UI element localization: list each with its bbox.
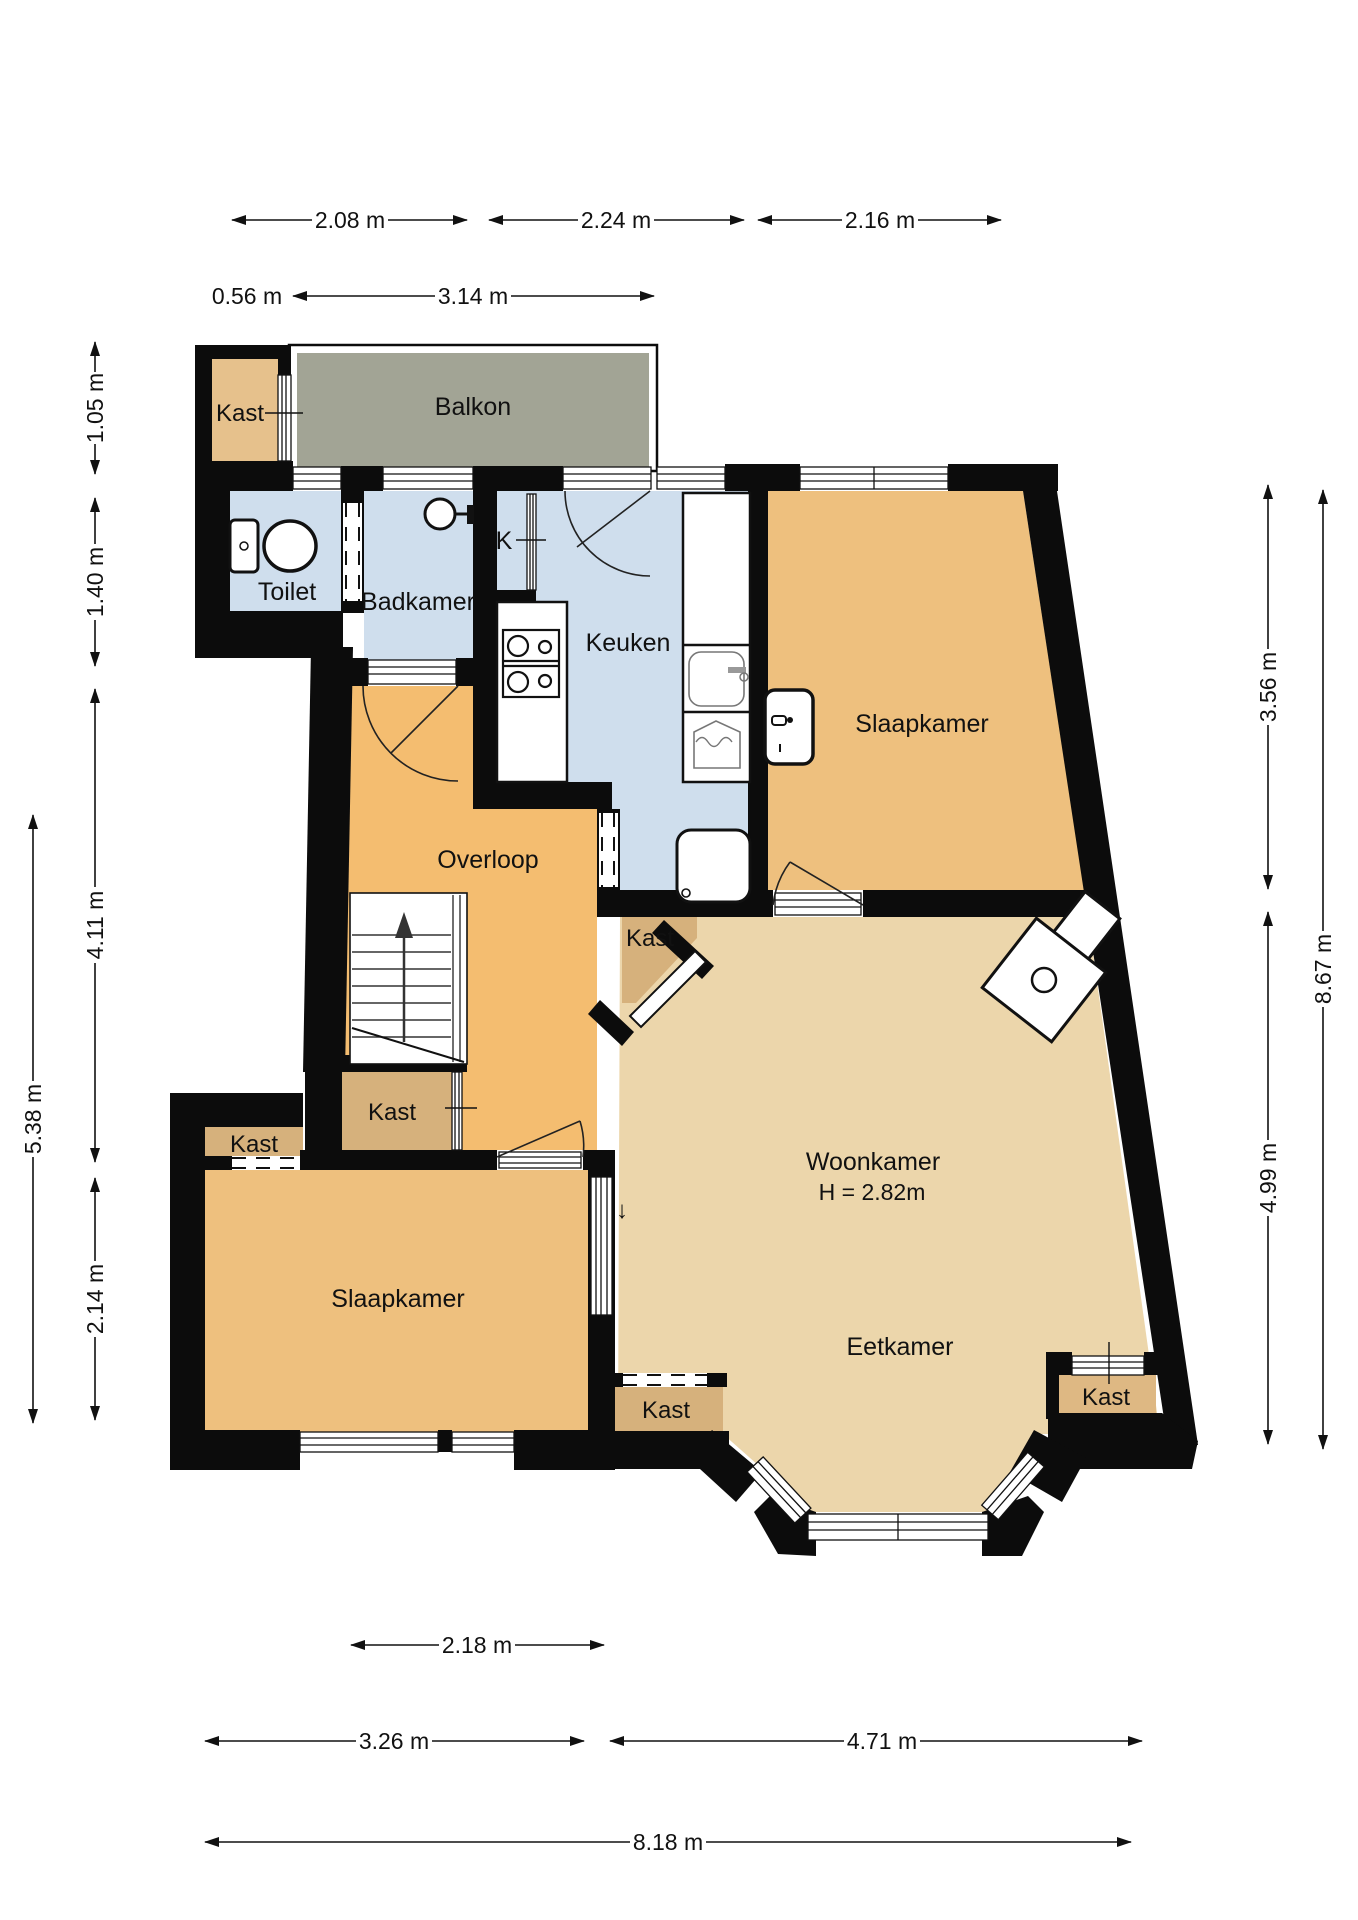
wall-segment — [438, 1430, 452, 1452]
opening-kast-eetkamer — [623, 1373, 707, 1387]
kitchen-sink-icon — [689, 652, 744, 706]
dimension-3-14: 3.14 m — [293, 283, 654, 309]
dim-label: 5.38 m — [20, 1084, 46, 1154]
wall-segment — [473, 602, 497, 784]
opening-overloop-woonkamer — [599, 813, 618, 887]
label-balkon: Balkon — [435, 393, 511, 421]
dimension-4-71: 4.71 m — [610, 1728, 1142, 1754]
door-threshold — [499, 1152, 581, 1168]
wall-segment — [707, 1373, 727, 1387]
dim-label: 1.40 m — [82, 547, 108, 617]
dimension-2-24: 2.24 m — [489, 207, 744, 233]
label-kast-k: K — [496, 527, 513, 555]
dim-label: 4.71 m — [847, 1728, 917, 1754]
dim-label: 8.67 m — [1310, 934, 1336, 1004]
window — [1072, 1356, 1144, 1375]
dim-label: 4.11 m — [82, 891, 108, 960]
dim-label: 3.26 m — [359, 1728, 429, 1754]
window — [452, 1072, 462, 1150]
floorplan-page: ↓ Kast Balkon Toilet Badkamer K Keuken S… — [0, 0, 1358, 1920]
dimension-4-99: 4.99 m — [1255, 912, 1281, 1444]
label-slaapkamer-links: Slaapkamer — [331, 1285, 464, 1313]
wall-segment — [473, 782, 612, 809]
toilet-icon — [230, 520, 316, 572]
wall-segment — [305, 1072, 342, 1152]
dimension-3-56: 3.56 m — [1255, 485, 1281, 889]
dim-label: 2.18 m — [442, 1632, 512, 1658]
dimension-3-26: 3.26 m — [205, 1728, 584, 1754]
dim-label: 8.18 m — [633, 1829, 703, 1855]
label-toilet: Toilet — [258, 578, 316, 606]
wall-segment — [1046, 1352, 1072, 1375]
wall-segment — [473, 466, 563, 491]
wall-segment — [341, 466, 383, 491]
dimension-5-38: 5.38 m — [20, 815, 46, 1423]
window — [300, 1432, 438, 1452]
dim-label: 1.05 m — [82, 373, 108, 443]
label-badkamer: Badkamer — [361, 588, 475, 616]
window — [563, 467, 651, 489]
window — [591, 1177, 612, 1315]
dimension-2-14: 2.14 m — [82, 1178, 108, 1420]
window — [383, 467, 473, 489]
dim-label: 2.24 m — [581, 207, 651, 233]
window — [278, 375, 291, 461]
dim-label: 2.16 m — [845, 207, 915, 233]
faucet-icon — [728, 667, 746, 673]
door-threshold — [368, 660, 456, 684]
staircase-icon — [350, 893, 467, 1064]
wall-segment — [205, 1156, 232, 1170]
wall-segment — [300, 1150, 497, 1170]
dimension-1-40: 1.40 m — [82, 498, 108, 666]
dimension-8-18: 8.18 m — [205, 1829, 1131, 1855]
dimension-2-08: 2.08 m — [232, 207, 467, 233]
window — [657, 467, 725, 489]
wash-basin-icon — [765, 690, 813, 764]
dimension-8-67: 8.67 m — [1310, 490, 1336, 1449]
dimension-2-18: 2.18 m — [351, 1632, 604, 1658]
dim-label: 4.99 m — [1255, 1143, 1281, 1213]
dim-label: 3.14 m — [438, 283, 508, 309]
wall-segment — [303, 647, 353, 1072]
window — [527, 494, 536, 590]
bay-window-front — [808, 1514, 988, 1540]
window — [293, 467, 341, 489]
wall-segment — [456, 658, 497, 686]
dim-label: 3.56 m — [1255, 652, 1281, 722]
label-kast-erker-rechts: Kast — [1082, 1384, 1130, 1411]
label-woonkamer-height: H = 2.82m — [819, 1179, 926, 1205]
badkamer-floor — [364, 491, 473, 660]
dimension-4-11: 4.11 m — [82, 689, 108, 1162]
dimension-0-56: 0.56 m — [212, 283, 282, 309]
wall-segment — [477, 590, 536, 602]
wall-segment — [592, 1373, 623, 1387]
dimension-2-16: 2.16 m — [758, 207, 1001, 233]
fridge-icon — [677, 830, 750, 902]
dim-label: 0.56 m — [212, 283, 282, 309]
label-keuken: Keuken — [586, 629, 671, 657]
level-down-arrow-icon: ↓ — [616, 1197, 628, 1224]
wall-segment — [1046, 1373, 1059, 1419]
wall-segment — [278, 345, 291, 375]
dimension-1-05: 1.05 m — [82, 342, 108, 474]
floorplan-drawing: ↓ Kast Balkon Toilet Badkamer K Keuken S… — [0, 0, 1358, 1920]
opening-kast-slaapkamer — [232, 1156, 300, 1170]
wall-segment — [170, 1093, 205, 1464]
label-kast-overloop: Kast — [368, 1099, 416, 1126]
label-slaapkamer-rechts: Slaapkamer — [855, 710, 988, 738]
wall-segment — [725, 464, 800, 491]
label-eetkamer: Eetkamer — [847, 1333, 954, 1361]
label-woonkamer: Woonkamer — [806, 1148, 940, 1176]
window — [800, 467, 948, 489]
label-kast-balkon: Kast — [216, 400, 264, 427]
wall-segment — [1144, 1352, 1168, 1375]
dim-label: 2.14 m — [82, 1264, 108, 1334]
opening-toilet-badkamer — [343, 503, 362, 601]
label-kast-woonkamer: Kast — [626, 925, 674, 952]
dim-label: 2.08 m — [315, 207, 385, 233]
kitchen-counter — [683, 493, 750, 782]
wall-segment — [170, 1430, 300, 1470]
label-kast-erker-links: Kast — [642, 1397, 690, 1424]
wall-segment — [473, 491, 497, 602]
wall-segment — [195, 345, 212, 471]
window — [452, 1432, 514, 1452]
label-kast-slaapkamer: Kast — [230, 1131, 278, 1158]
label-overloop: Overloop — [437, 846, 538, 874]
